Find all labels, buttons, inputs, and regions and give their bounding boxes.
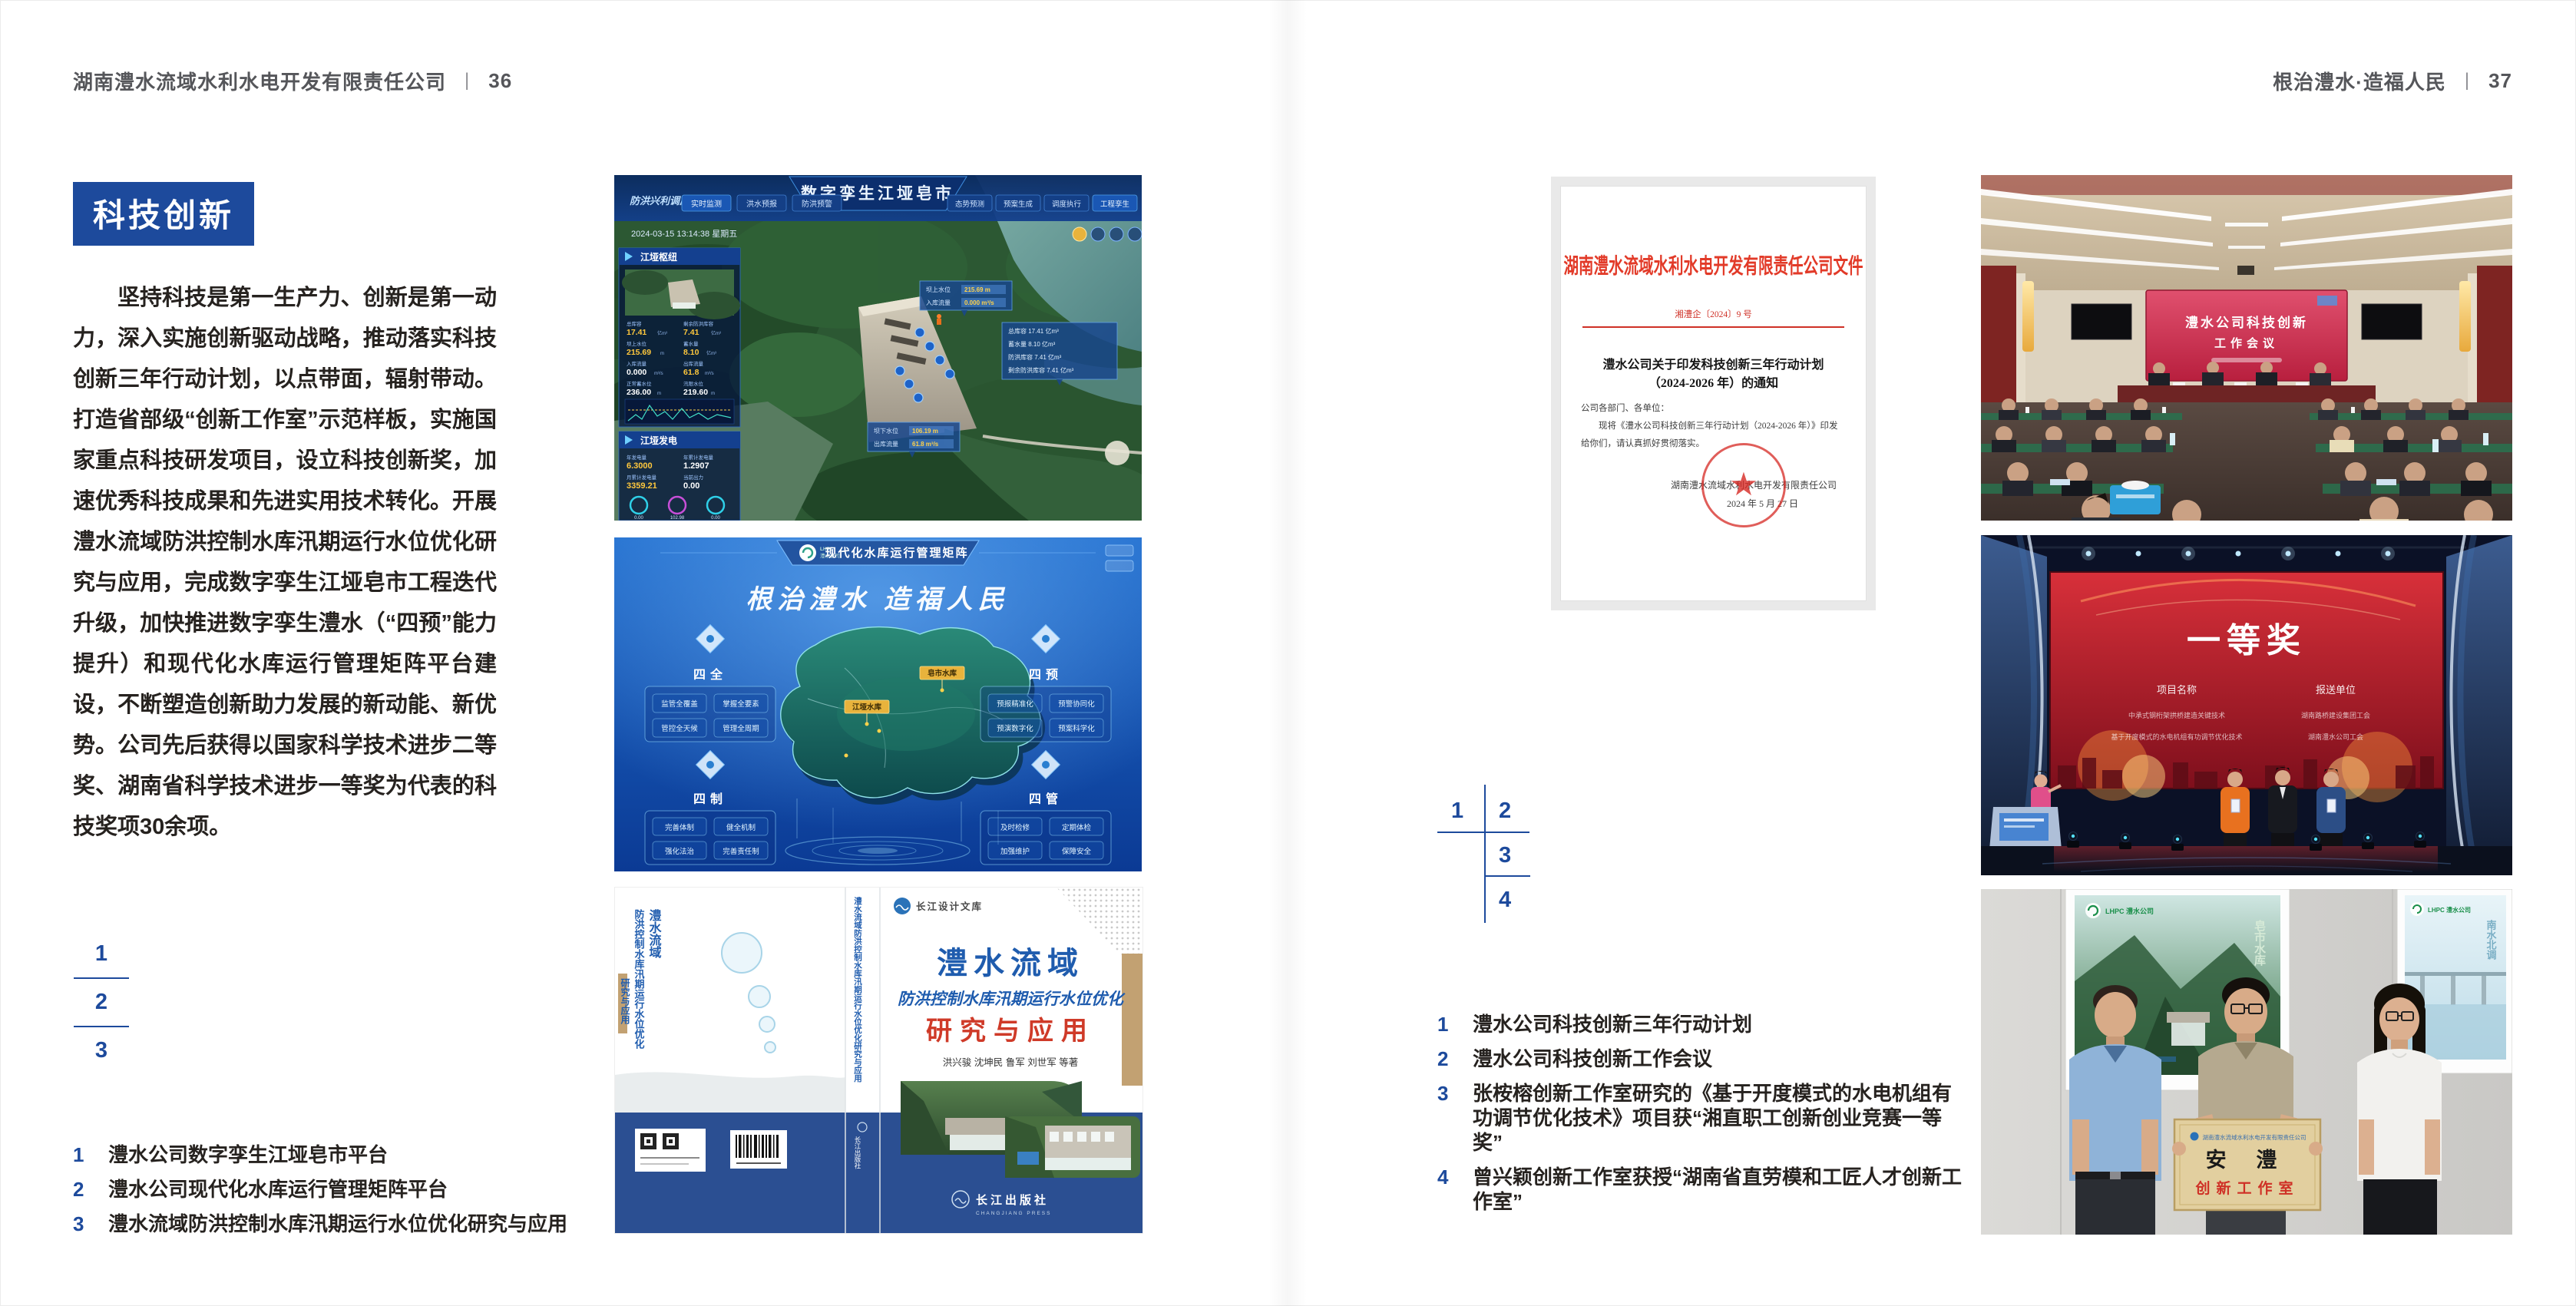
matrix-title: 现代化水库运行管理矩阵 (825, 546, 968, 560)
award-illustration: 一等奖 项目名称 报送单位 中承式钢桁架拱桥建造关键技术 湖南路桥建设集团工会 … (1981, 535, 2512, 875)
power-panel: 江垭发电 年发电量 6.3000 年累计发电量 1.2907 月累计发电量 33… (619, 431, 740, 521)
caption-text: 澧水公司现代化水库运行管理矩阵平台 (108, 1177, 448, 1202)
group-item: 完善体制 (665, 823, 694, 832)
group-item: 定期体检 (1062, 823, 1092, 832)
award-row-unit: 湖南路桥建设集团工会 (2301, 711, 2370, 719)
stat-value: 219.60 (683, 388, 708, 397)
dashboard-datetime: 2024-03-15 13:14:38 星期五 (631, 229, 737, 239)
digital-twin-illustration: 数字孪生江垭皂市 防洪兴利调度 实时监测 洪水预报 防洪预警 态势预测 预案生成… (614, 175, 1142, 521)
poster-right-logo: LHPC 澧水公司 (2428, 906, 2471, 914)
matrix-slogan: 根治澧水 造福人民 (746, 585, 1010, 614)
header-divider: | (2465, 70, 2470, 91)
captions-left: 1 澧水公司数字孪生江垭皂市平台 2 澧水公司现代化水库运行管理矩阵平台 3 澧… (73, 1142, 567, 1236)
wall-lamp-right (2459, 281, 2471, 352)
group-item: 完善责任制 (723, 847, 759, 856)
figure-book-cover: 澧水流域 防洪控制水库汛期运行水位优化 研究与应用 (614, 887, 1143, 1234)
tooltip-row: 剩余防洪库容 7.41 亿m³ (1008, 366, 1074, 374)
caption-row: 1 澧水公司科技创新三年行动计划 (1437, 1012, 1964, 1037)
stat-label: 蓄水量 (683, 340, 699, 347)
hub-chart (625, 399, 734, 424)
book-title-1: 澧水流域 (937, 947, 1084, 980)
figure-meeting-photo: 澧水公司科技创新 工作会议 (1981, 175, 2512, 521)
group-item: 健全机制 (726, 823, 756, 832)
tooltip-row: 防洪库容 7.41 亿m³ (1008, 353, 1062, 361)
group-name: 四预 (1029, 668, 1063, 682)
running-head-right: 根治澧水·造福人民 | 37 (2273, 68, 2512, 94)
wall-lamp-left (2022, 281, 2034, 352)
caption-number: 3 (1437, 1081, 1459, 1155)
lhpc-logo-icon (799, 544, 816, 561)
caption-row: 3 张桉榕创新工作室研究的《基于开度模式的水电机组有功调节优化技术》项目获“湘直… (1437, 1081, 1964, 1155)
figure-index-left: 1 2 3 (74, 941, 129, 1063)
back-waves (615, 1072, 845, 1113)
screen-title-line1: 澧水公司科技创新 (2185, 315, 2308, 330)
group-item: 及时检修 (1000, 823, 1030, 832)
meeting-illustration: 澧水公司科技创新 工作会议 (1981, 175, 2512, 521)
poster-right-caption: 南水北调 (2485, 919, 2497, 960)
plaque-org: 湖南澧水流域水利水电开发有限责任公司 (2203, 1133, 2306, 1141)
wall-tv-left (2072, 304, 2131, 339)
group-item: 管控全天候 (661, 724, 698, 733)
stat-unit: m³/s (654, 372, 663, 376)
award-row-project: 基于开度模式的水电机组有功调节优化技术 (2111, 732, 2242, 741)
tooltip-value: 0.000 m³/s (964, 299, 994, 306)
power-panel-title: 江垭发电 (640, 435, 677, 446)
figure-index-3: 3 (74, 1038, 129, 1063)
stat-value: 0.00 (683, 481, 699, 491)
plaque: 湖南澧水流域水利水电开发有限责任公司 安 澧 创新工作室 (2172, 1119, 2323, 1210)
stat-label: 汛限水位 (683, 380, 704, 387)
worker-marker (937, 314, 941, 325)
caption-number: 2 (1437, 1046, 1459, 1071)
stat-unit: m (657, 392, 661, 396)
group-item: 强化法治 (665, 847, 694, 856)
stat-label: 出库流量 (683, 360, 704, 367)
seal-star-icon: ★ (1729, 469, 1758, 501)
back-title-1: 澧水流域 (647, 908, 662, 959)
tooltip-label: 出库流量 (874, 440, 898, 448)
company-name: 湖南澧水流域水利水电开发有限责任公司 (73, 67, 446, 95)
stat-value: 7.41 (683, 328, 699, 337)
stat-unit: m (660, 352, 664, 356)
plaque-name: 安 澧 (2206, 1149, 2290, 1172)
book-authors: 洪兴骏 沈坤民 鲁军 刘世军 等著 (943, 1056, 1078, 1068)
tab-realtime[interactable]: 实时监测 (691, 199, 722, 209)
page-gutter-shadow (1268, 0, 1307, 1306)
screen-logo (2317, 296, 2337, 306)
group-item: 加强维护 (1000, 847, 1030, 856)
figure-workshop-photo: LHPC 澧水公司 皂市水库 LHPC 澧水公司 南水北调 (1981, 889, 2512, 1235)
stat-value: 1.2907 (683, 461, 709, 471)
document-page: 湖南澧水流域水利水电开发有限责任公司文件 湘澧企〔2024〕9 号 澧水公司关于… (1560, 186, 1867, 601)
group-item: 预警协同化 (1058, 699, 1095, 709)
official-seal: ★ (1701, 443, 1786, 527)
poster-left-logo: LHPC 澧水公司 (2105, 907, 2154, 915)
projector (2237, 266, 2254, 275)
figure-index-3: 3 (1499, 843, 1511, 868)
stat-label: 总库容 (627, 320, 642, 327)
workshop-illustration: LHPC 澧水公司 皂市水库 LHPC 澧水公司 南水北调 (1981, 889, 2512, 1235)
page-number-left: 36 (488, 69, 512, 93)
figure-official-document: 湖南澧水流域水利水电开发有限责任公司文件 湘澧企〔2024〕9 号 澧水公司关于… (1551, 177, 1876, 610)
figure-index-1: 1 (1451, 798, 1463, 824)
figure-matrix-platform: LHPC 澧水公司 现代化水库运行管理矩阵 根治澧水 造福人民 皂市水库 (614, 537, 1142, 871)
caption-row: 4 曾兴颖创新工作室获授“湖南省直劳模和工匠人才创新工作室” (1437, 1165, 1964, 1214)
figure-award-photo: 一等奖 项目名称 报送单位 中承式钢桁架拱桥建造关键技术 湖南路桥建设集团工会 … (1981, 535, 2512, 875)
screen-title-line2: 工作会议 (2214, 336, 2279, 350)
group-name: 四管 (1029, 792, 1063, 806)
document-title-line2: （2024-2026 年）的通知 (1561, 372, 1866, 391)
gauge-value: 0.00 (634, 516, 643, 521)
stat-label: 月累计发电量 (627, 474, 657, 481)
publisher-name: 长江出版社 (976, 1193, 1049, 1207)
back-title-3: 研究与应用 (620, 978, 630, 1025)
stat-label: 正常蓄水位 (627, 380, 652, 387)
gauge-value: 102.98 (670, 516, 685, 521)
stat-value: 61.8 (683, 368, 699, 377)
motto: 根治澧水·造福人民 (2273, 67, 2446, 95)
hub-panel-title: 江垭枢纽 (640, 251, 677, 263)
tooltip-value: 61.8 m³/s (912, 441, 939, 448)
back-title-2: 防洪控制水库汛期运行水位优化 (633, 908, 646, 1050)
front-photo-2 (1005, 1116, 1140, 1178)
document-title-line1: 澧水公司关于印发科技创新三年行动计划 (1561, 354, 1866, 372)
side-panel-right (2446, 535, 2512, 875)
caption-number: 2 (73, 1177, 94, 1202)
figure-grid-hline (1484, 875, 1530, 877)
series-name: 长江设计文库 (916, 901, 983, 912)
winners (2221, 767, 2346, 853)
document-header: 湖南澧水流域水利水电开发有限责任公司文件 (1561, 248, 1866, 279)
stat-label: 当前出力 (683, 474, 703, 481)
stat-value: 215.69 (627, 348, 651, 357)
award-row-unit: 湖南澧水公司工会 (2308, 732, 2363, 741)
figure-index-rule (74, 977, 129, 979)
audience-floor (1981, 402, 2512, 521)
column-unit: 报送单位 (2316, 684, 2356, 696)
caption-number: 1 (73, 1142, 94, 1167)
group-item: 掌握全要素 (723, 699, 759, 709)
tab-dispatch[interactable]: 调度执行 (1052, 200, 1082, 209)
tooltip-label: 坝下水位 (874, 427, 898, 435)
stat-label: 年累计发电量 (683, 454, 714, 461)
road-loop (1105, 441, 1129, 465)
stat-unit: 亿m³ (711, 330, 721, 336)
stat-label: 剩余防洪库容 (683, 320, 714, 327)
group-name: 四全 (693, 667, 727, 682)
figure-grid-hline (1437, 832, 1529, 833)
tissue-box (2110, 481, 2161, 514)
figure-grid-vline (1484, 785, 1486, 923)
group-item: 预演数字化 (997, 724, 1033, 733)
figure-index-rule (74, 1026, 129, 1027)
stat-value: 17.41 (627, 328, 646, 337)
right-red-wall (2477, 266, 2512, 402)
wall-tv-right (2362, 304, 2422, 339)
left-red-wall (1981, 266, 2016, 402)
tooltip-value: 215.69 m (964, 286, 990, 293)
caption-text: 曾兴颖创新工作室获授“湖南省直劳模和工匠人才创新工作室” (1473, 1165, 1964, 1214)
figure-index-2: 2 (74, 990, 129, 1015)
stage-floor (1981, 846, 2512, 875)
caption-text: 张桉榕创新工作室研究的《基于开度模式的水电机组有功调节优化技术》项目获“湘直职工… (1473, 1081, 1964, 1155)
award-row-project: 中承式钢桁架拱桥建造关键技术 (2128, 711, 2225, 719)
figure-index-2: 2 (1499, 798, 1511, 824)
tooltip-row: 总库容 17.41 亿m³ (1008, 327, 1059, 335)
document-number: 湘澧企〔2024〕9 号 (1561, 308, 1866, 320)
tab-flood-forecast[interactable]: 洪水预报 (746, 199, 777, 209)
header-divider: | (465, 70, 470, 91)
spine-publisher: 长江出版社 (854, 1136, 861, 1169)
stat-label: 坝上水位 (627, 340, 647, 347)
group-item: 预报精准化 (997, 699, 1033, 709)
stat-value: 236.00 (627, 388, 651, 397)
book-title-3: 研究与应用 (926, 1017, 1095, 1046)
group-name: 四制 (693, 792, 727, 806)
figure-digital-twin-platform: 数字孪生江垭皂市 防洪兴利调度 实时监测 洪水预报 防洪预警 态势预测 预案生成… (614, 175, 1142, 521)
gauge-value: 0.00 (711, 516, 720, 521)
book-spread: 湖南澧水流域水利水电开发有限责任公司 | 36 科技创新 坚持科技是第一生产力、… (0, 0, 2576, 1306)
group-item: 管理全周期 (723, 724, 759, 733)
tooltip-row: 蓄水量 8.10 亿m³ (1008, 340, 1056, 348)
column-project: 项目名称 (2157, 684, 2197, 696)
document-body: 现将《澧水公司科技创新三年行动计划（2024-2026 年）》印发给你们，请认真… (1581, 418, 1846, 453)
caption-text: 澧水公司科技创新三年行动计划 (1473, 1012, 1752, 1037)
dashboard-tabs-left: 实时监测 洪水预报 防洪预警 (682, 195, 842, 211)
book-title-2: 防洪控制水库汛期运行水位优化 (898, 990, 1126, 1008)
header-button[interactable] (1106, 560, 1133, 571)
stat-value: 8.10 (683, 348, 699, 357)
stat-label: 年发电量 (627, 454, 647, 461)
caption-number: 1 (1437, 1012, 1459, 1037)
running-head-left: 湖南澧水流域水利水电开发有限责任公司 | 36 (73, 68, 512, 94)
caption-row: 3 澧水流域防洪控制水库汛期运行水位优化研究与应用 (73, 1212, 567, 1236)
figure-index-4: 4 (1499, 888, 1511, 913)
caption-text: 澧水公司科技创新工作会议 (1473, 1046, 1712, 1071)
document-red-rule (1582, 326, 1844, 328)
tooltip-capacity: 总库容 17.41 亿m³ 蓄水量 8.10 亿m³ 防洪库容 7.41 亿m³… (1002, 322, 1117, 385)
svg-text:皂市水库: 皂市水库 (928, 669, 957, 678)
tab-flood-warning[interactable]: 防洪预警 (802, 199, 832, 209)
tooltip-label: 入库流量 (926, 299, 951, 306)
tooltip-value: 106.19 m (912, 428, 938, 435)
publisher-en: CHANGJIANG PRESS (976, 1211, 1051, 1216)
caption-row: 1 澧水公司数字孪生江垭皂市平台 (73, 1142, 567, 1167)
ceiling-red-glow (1981, 175, 2512, 195)
matrix-illustration: LHPC 澧水公司 现代化水库运行管理矩阵 根治澧水 造福人民 皂市水库 (614, 537, 1142, 871)
stat-unit: m (711, 392, 715, 396)
stat-value: 0.000 (627, 368, 646, 377)
poster-left-caption: 皂市水库 (2253, 919, 2266, 967)
stat-unit: 亿m³ (657, 330, 667, 336)
group-item: 监管全覆盖 (661, 699, 698, 709)
group-item: 预案科学化 (1058, 724, 1095, 733)
svg-text:江垭水库: 江垭水库 (852, 703, 882, 712)
stat-value: 3359.21 (627, 481, 657, 491)
spine-title: 澧水流域防洪控制水库汛期运行水位优化研究与应用 (853, 896, 862, 1083)
plaque-sub: 创新工作室 (2194, 1179, 2299, 1197)
stat-unit: 亿m³ (706, 350, 716, 356)
stat-unit: m³/s (705, 372, 714, 376)
stat-value: 6.3000 (627, 461, 653, 471)
tooltip-label: 坝上水位 (926, 286, 951, 293)
captions-right: 1 澧水公司科技创新三年行动计划 2 澧水公司科技创新工作会议 3 张桉榕创新工… (1437, 1012, 1964, 1214)
document-salutation: 公司各部门、各单位： (1581, 400, 1846, 418)
header-button[interactable] (1106, 545, 1133, 556)
caption-text: 澧水公司数字孪生江垭皂市平台 (108, 1142, 388, 1167)
caption-number: 4 (1437, 1165, 1459, 1214)
front-tan-ribbon (1122, 954, 1143, 1086)
body-paragraph: 坚持科技是第一生产力、创新是第一动力，深入实施创新驱动战略，推动落实科技创新三年… (73, 278, 497, 848)
caption-number: 3 (73, 1212, 94, 1236)
figure-index-1: 1 (74, 941, 129, 967)
screen-subtext (2211, 358, 2282, 362)
book-cover-illustration: 澧水流域 防洪控制水库汛期运行水位优化 研究与应用 (615, 888, 1143, 1233)
caption-row: 2 澧水公司科技创新工作会议 (1437, 1046, 1964, 1071)
tab-plan-generate[interactable]: 预案生成 (1004, 200, 1033, 209)
stat-label: 入库流量 (627, 360, 647, 367)
section-title: 科技创新 (73, 182, 254, 246)
page-number-right: 37 (2488, 69, 2512, 93)
caption-row: 2 澧水公司现代化水库运行管理矩阵平台 (73, 1177, 567, 1202)
led-screen: 一等奖 项目名称 报送单位 中承式钢桁架拱桥建造关键技术 湖南路桥建设集团工会 … (2050, 572, 2443, 802)
caption-text: 澧水流域防洪控制水库汛期运行水位优化研究与应用 (108, 1212, 567, 1236)
tab-engineering-twin[interactable]: 工程孪生 (1100, 200, 1130, 209)
group-item: 保障安全 (1062, 847, 1092, 856)
tab-situation[interactable]: 态势预测 (955, 200, 984, 209)
award-title: 一等奖 (2187, 622, 2306, 660)
